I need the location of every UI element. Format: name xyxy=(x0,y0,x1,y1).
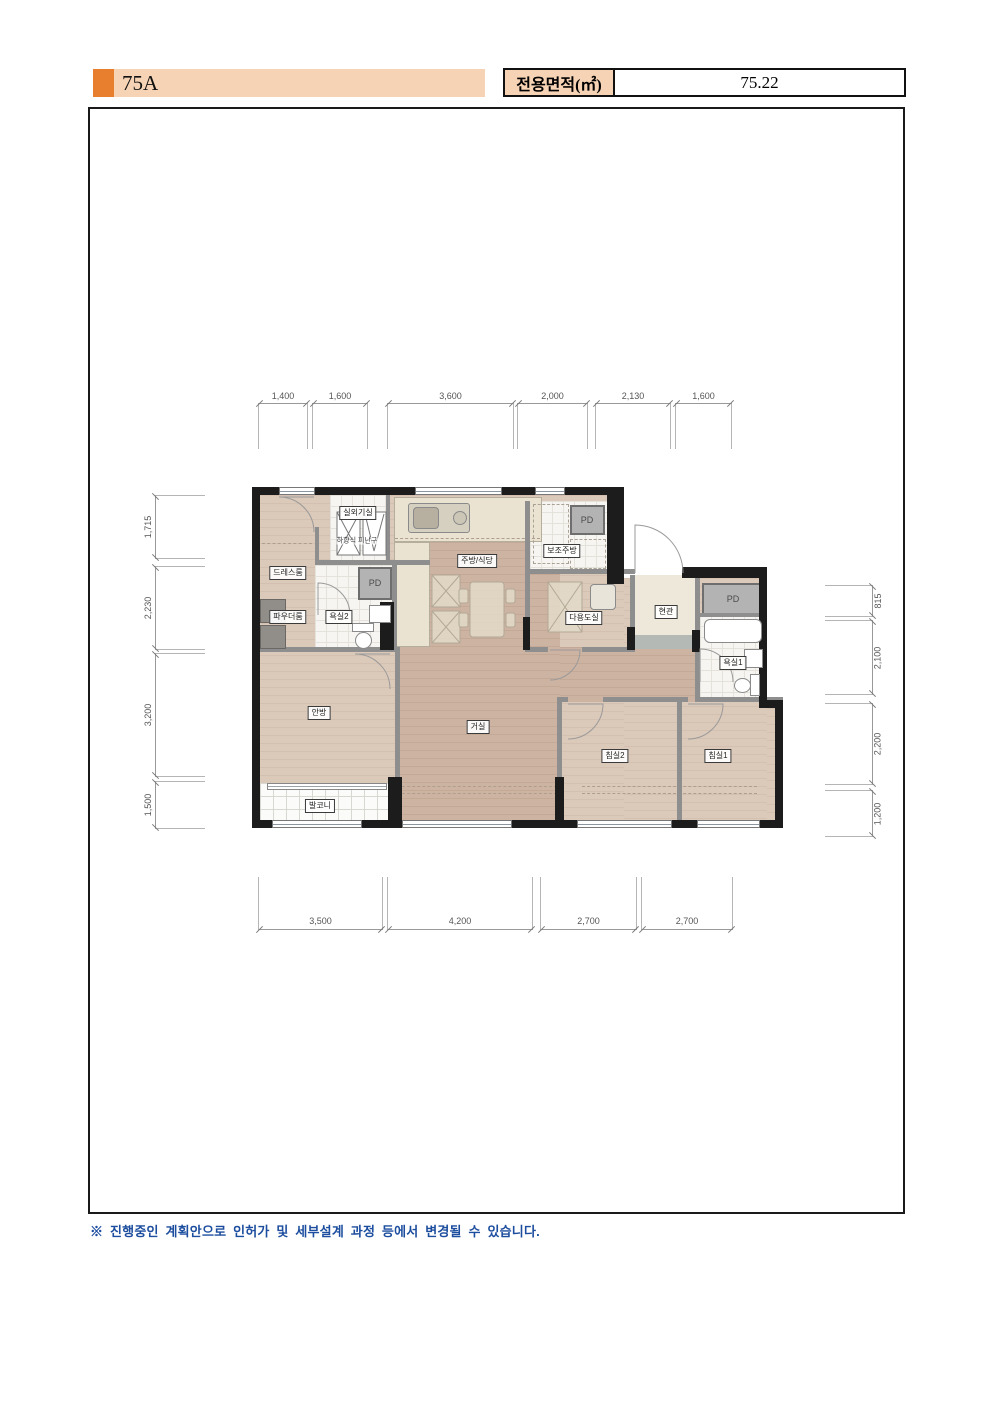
label-bedroom2: 침실2 xyxy=(601,749,628,763)
bedroom1-door-arc xyxy=(688,704,723,739)
label-bath1: 욕실1 xyxy=(719,656,746,670)
floor-plan: 실외기실 하향식 피난구 드레스룸 파우더룸 욕실2 주방/식당 보조주방 다용… xyxy=(252,487,787,839)
front-door-arc xyxy=(635,525,683,573)
unit-title: 75A xyxy=(122,71,158,96)
dim-top-5: 2,130 xyxy=(595,403,671,449)
dim-right-2: 2,100 xyxy=(825,620,873,695)
dim-bottom-4: 2,700 xyxy=(641,877,733,930)
dim-right-1: 815 xyxy=(825,585,873,617)
dining-chair xyxy=(506,613,515,627)
label-powder-room: 파우더룸 xyxy=(269,610,306,624)
dim-right-3: 2,200 xyxy=(825,703,873,785)
dim-top-3: 3,600 xyxy=(387,403,514,449)
dining-chair xyxy=(506,589,515,603)
label-aux-kitchen: 보조주방 xyxy=(543,544,580,558)
label-utility: 다용도실 xyxy=(565,611,602,625)
dim-top-1: 1,400 xyxy=(258,403,308,449)
label-pd-bath2: PD xyxy=(369,578,382,588)
label-master: 안방 xyxy=(308,706,331,720)
dim-left-2: 2,230 xyxy=(155,566,205,650)
dim-right-4: 1,200 xyxy=(825,790,873,837)
label-living: 거실 xyxy=(467,720,490,734)
dim-top-6: 1,600 xyxy=(675,403,732,449)
master-door-arc xyxy=(355,654,390,689)
dim-top-2: 1,600 xyxy=(312,403,368,449)
label-bedroom1: 침실1 xyxy=(704,749,731,763)
dim-top-4: 2,000 xyxy=(517,403,588,449)
dim-bottom-1: 3,500 xyxy=(258,877,383,930)
dim-left-3: 3,200 xyxy=(155,653,205,777)
dim-bottom-2: 4,200 xyxy=(387,877,533,930)
label-kitchen: 주방/식당 xyxy=(457,554,497,568)
label-escape-hatch: 하향식 피난구 xyxy=(337,538,378,545)
footer-note: ※ 진행중인 계획안으로 인허가 및 세부설계 과정 등에서 변경될 수 있습니… xyxy=(90,1221,790,1240)
label-bath2: 욕실2 xyxy=(325,610,352,624)
label-pd-top: PD xyxy=(581,515,594,525)
area-value-cell: 75.22 xyxy=(613,68,906,97)
dim-left-1: 1,715 xyxy=(155,495,205,559)
label-outdoor-unit: 실외기실 xyxy=(339,506,376,520)
dim-bottom-3: 2,700 xyxy=(540,877,637,930)
dressroom-door-arc xyxy=(279,497,314,532)
dim-left-4: 1,500 xyxy=(155,781,205,829)
dining-chair xyxy=(459,613,468,627)
label-dressroom: 드레스룸 xyxy=(269,566,306,580)
unit-accent-square xyxy=(93,69,114,97)
plan-symbols xyxy=(252,487,787,839)
label-balcony: 발코니 xyxy=(305,799,335,813)
bedroom2-door-arc xyxy=(568,704,603,739)
dining-table xyxy=(470,582,504,637)
label-entrance: 현관 xyxy=(655,605,678,619)
area-label: 전용면적(㎡) xyxy=(516,71,602,95)
area-label-cell: 전용면적(㎡) xyxy=(503,68,615,97)
utility-door-arc xyxy=(550,650,580,680)
dining-chair xyxy=(459,589,468,603)
area-value: 75.22 xyxy=(740,73,778,93)
label-pd-right: PD xyxy=(727,594,740,604)
